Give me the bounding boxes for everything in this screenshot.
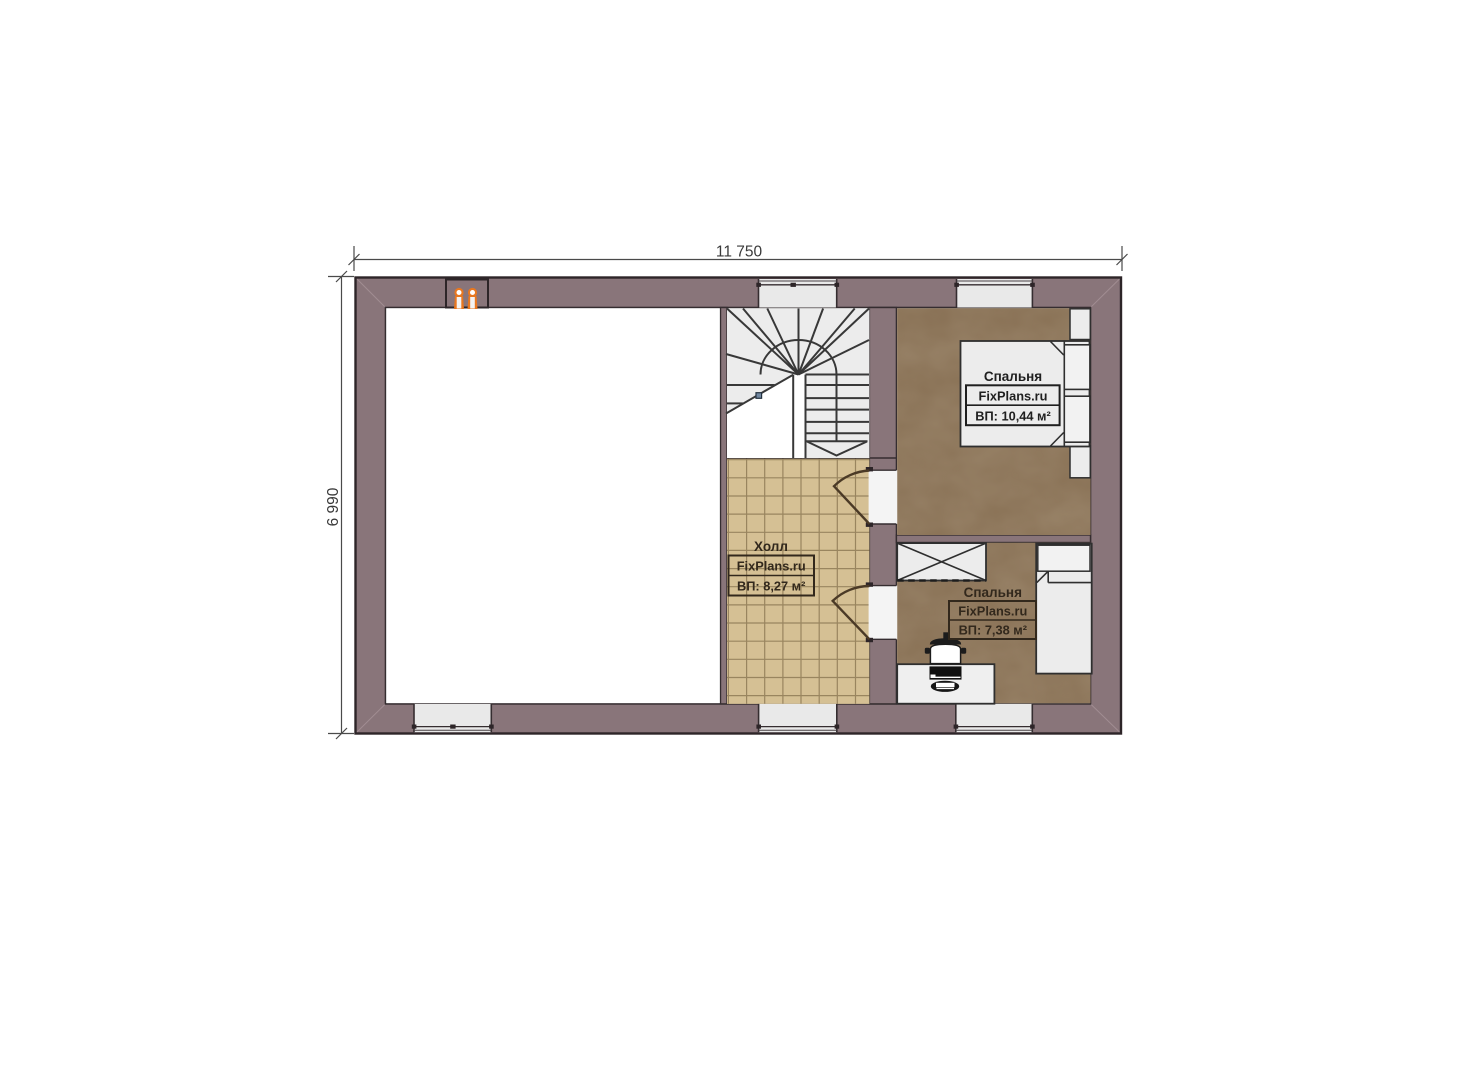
svg-text:11 750: 11 750: [716, 243, 763, 260]
svg-text:ВП: 7,38 м²: ВП: 7,38 м²: [959, 623, 1027, 638]
svg-text:Спальня: Спальня: [964, 585, 1022, 600]
svg-text:6 990: 6 990: [325, 487, 342, 526]
svg-text:Спальня: Спальня: [984, 369, 1042, 384]
svg-text:ВП: 10,44 м²: ВП: 10,44 м²: [975, 408, 1051, 423]
svg-text:FixPlans.ru: FixPlans.ru: [737, 559, 806, 574]
svg-text:Холл: Холл: [754, 539, 788, 554]
svg-text:FixPlans.ru: FixPlans.ru: [958, 603, 1027, 618]
svg-text:ВП: 8,27 м²: ВП: 8,27 м²: [737, 579, 805, 594]
svg-text:FixPlans.ru: FixPlans.ru: [979, 388, 1048, 403]
